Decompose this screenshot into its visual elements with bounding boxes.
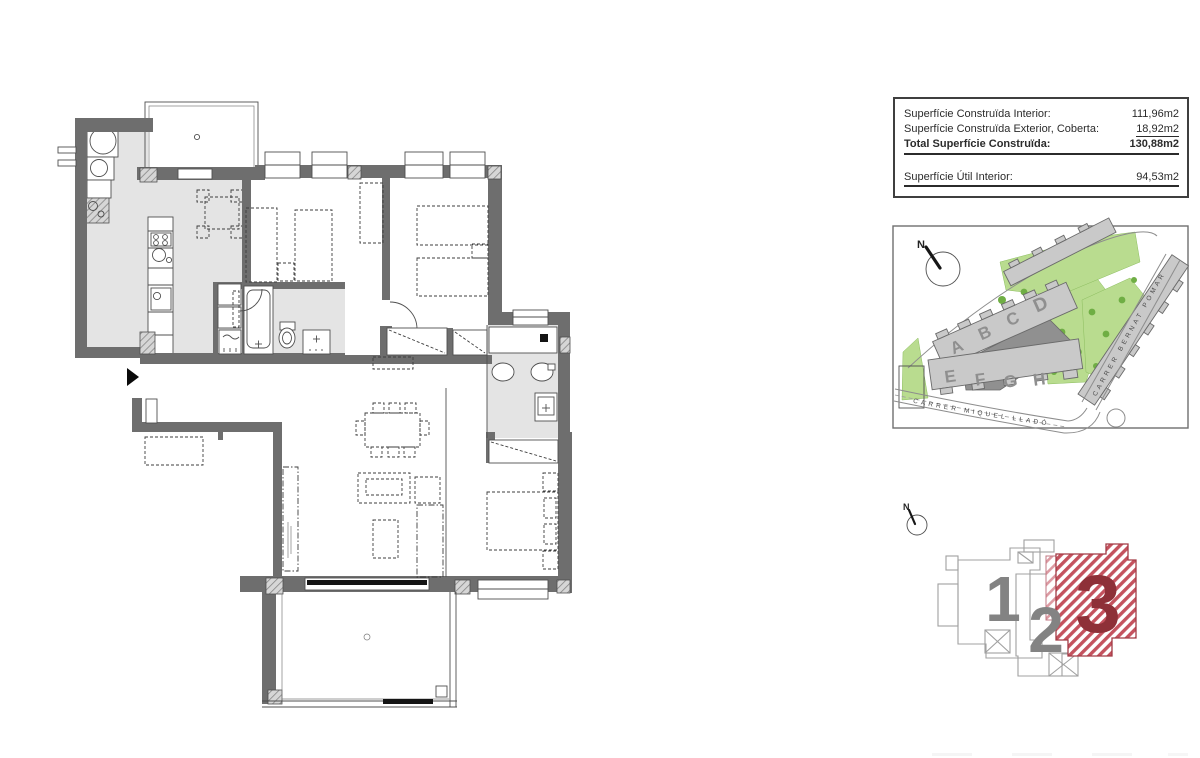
hall-closets [387,328,487,577]
area-row-exterior: Superfície Construïda Exterior, Coberta:… [904,122,1179,138]
unit-number-3-highlighted: 3 [1075,559,1121,650]
lower-terrace [262,592,457,707]
area-label: Superfície Construïda Exterior, Coberta: [904,122,1099,138]
block-label-g: G [1002,371,1018,392]
entry-arrow-icon [127,368,139,386]
key-north-arrow-icon: N [903,502,927,535]
key-plan: N 1 2 3 [903,502,1136,676]
area-row-interior: Superfície Construïda Interior: 111,96m2 [904,107,1179,122]
bedroom3-furniture [487,440,558,569]
living-furniture [145,357,443,577]
area-value: 111,96m2 [1132,107,1179,122]
area-label: Total Superfície Construïda: [904,137,1050,152]
unit-number-2: 2 [1028,594,1064,666]
area-table: Superfície Construïda Interior: 111,96m2… [893,97,1189,198]
block-label-h: H [1032,369,1047,390]
bedroom2-furniture [390,206,488,329]
north-label: N [917,239,925,251]
area-label: Superfície Construïda Interior: [904,107,1051,122]
floor-plan [58,102,572,707]
area-value: 18,92m2 [1136,122,1179,138]
sliding-door [307,580,427,585]
area-value: 94,53m2 [1136,170,1179,185]
site-plan: A B C D E F G H [893,214,1193,434]
key-north-label: N [903,502,910,512]
scale-bar-faint [932,753,1188,756]
area-value: 130,88m2 [1129,137,1179,152]
upper-terrace [145,102,258,178]
area-row-util: Superfície Útil Interior: 94,53m2 [904,170,1179,188]
area-label: Superfície Útil Interior: [904,170,1013,185]
area-row-total: Total Superfície Construïda: 130,88m2 [904,137,1179,155]
unit-number-1: 1 [985,563,1021,635]
plan-sheet: A B C D E F G H [0,0,1200,758]
bedroom1-furniture [246,183,383,282]
